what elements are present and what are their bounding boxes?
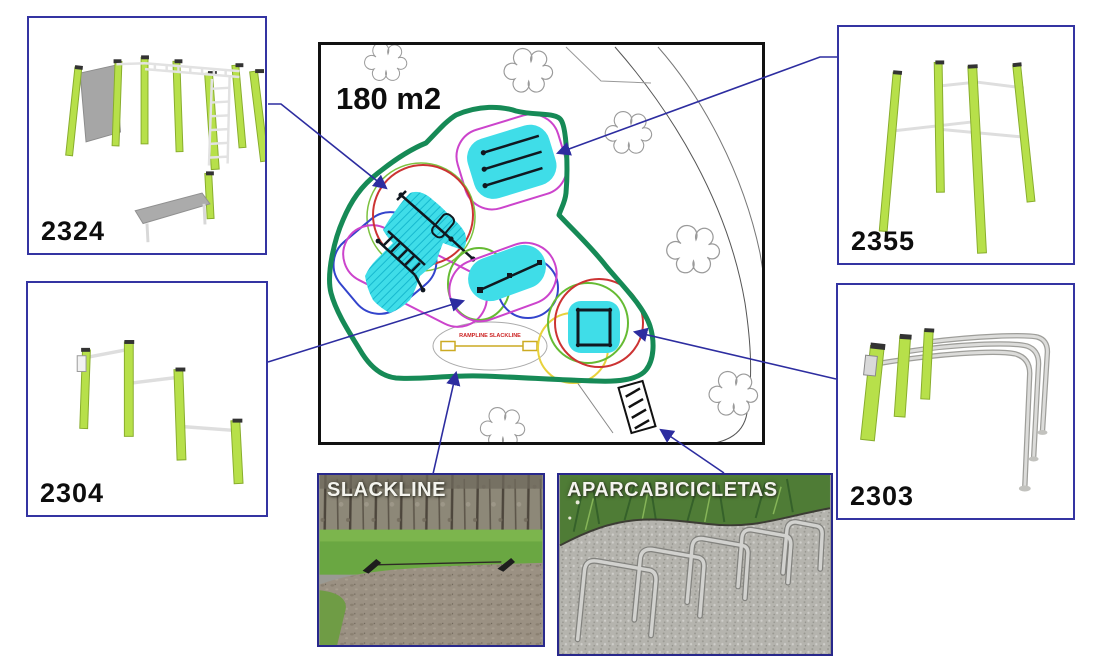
photo-slackline: SLACKLINE [317, 473, 545, 647]
equipment-box-2355: 2355 [837, 25, 1075, 265]
zone-square-frame [538, 279, 643, 383]
site-plan: RAMPLINE SLACKLINE [318, 42, 765, 445]
photo-slackline-label: SLACKLINE [327, 479, 446, 502]
page: 2324 2355 [0, 0, 1110, 658]
zone-monkey-bars [450, 107, 574, 216]
slackline-zone-label: RAMPLINE SLACKLINE [459, 333, 521, 339]
slackline-zone: RAMPLINE SLACKLINE [433, 322, 547, 370]
area-label: 180 m2 [336, 81, 441, 117]
photo-bike-racks-label: APARCABICICLETAS [567, 479, 778, 502]
photo-bike-racks: APARCABICICLETAS [557, 473, 833, 656]
equipment-code-label: 2355 [851, 226, 915, 257]
equipment-code-label: 2303 [850, 481, 914, 512]
equipment-box-2324: 2324 [27, 16, 267, 255]
equipment-code-label: 2304 [40, 478, 104, 509]
equipment-box-2303: 2303 [836, 283, 1075, 520]
equipment-box-2304: 2304 [26, 281, 268, 517]
equipment-code-label: 2324 [41, 216, 105, 247]
bike-rack-symbol [619, 381, 656, 433]
